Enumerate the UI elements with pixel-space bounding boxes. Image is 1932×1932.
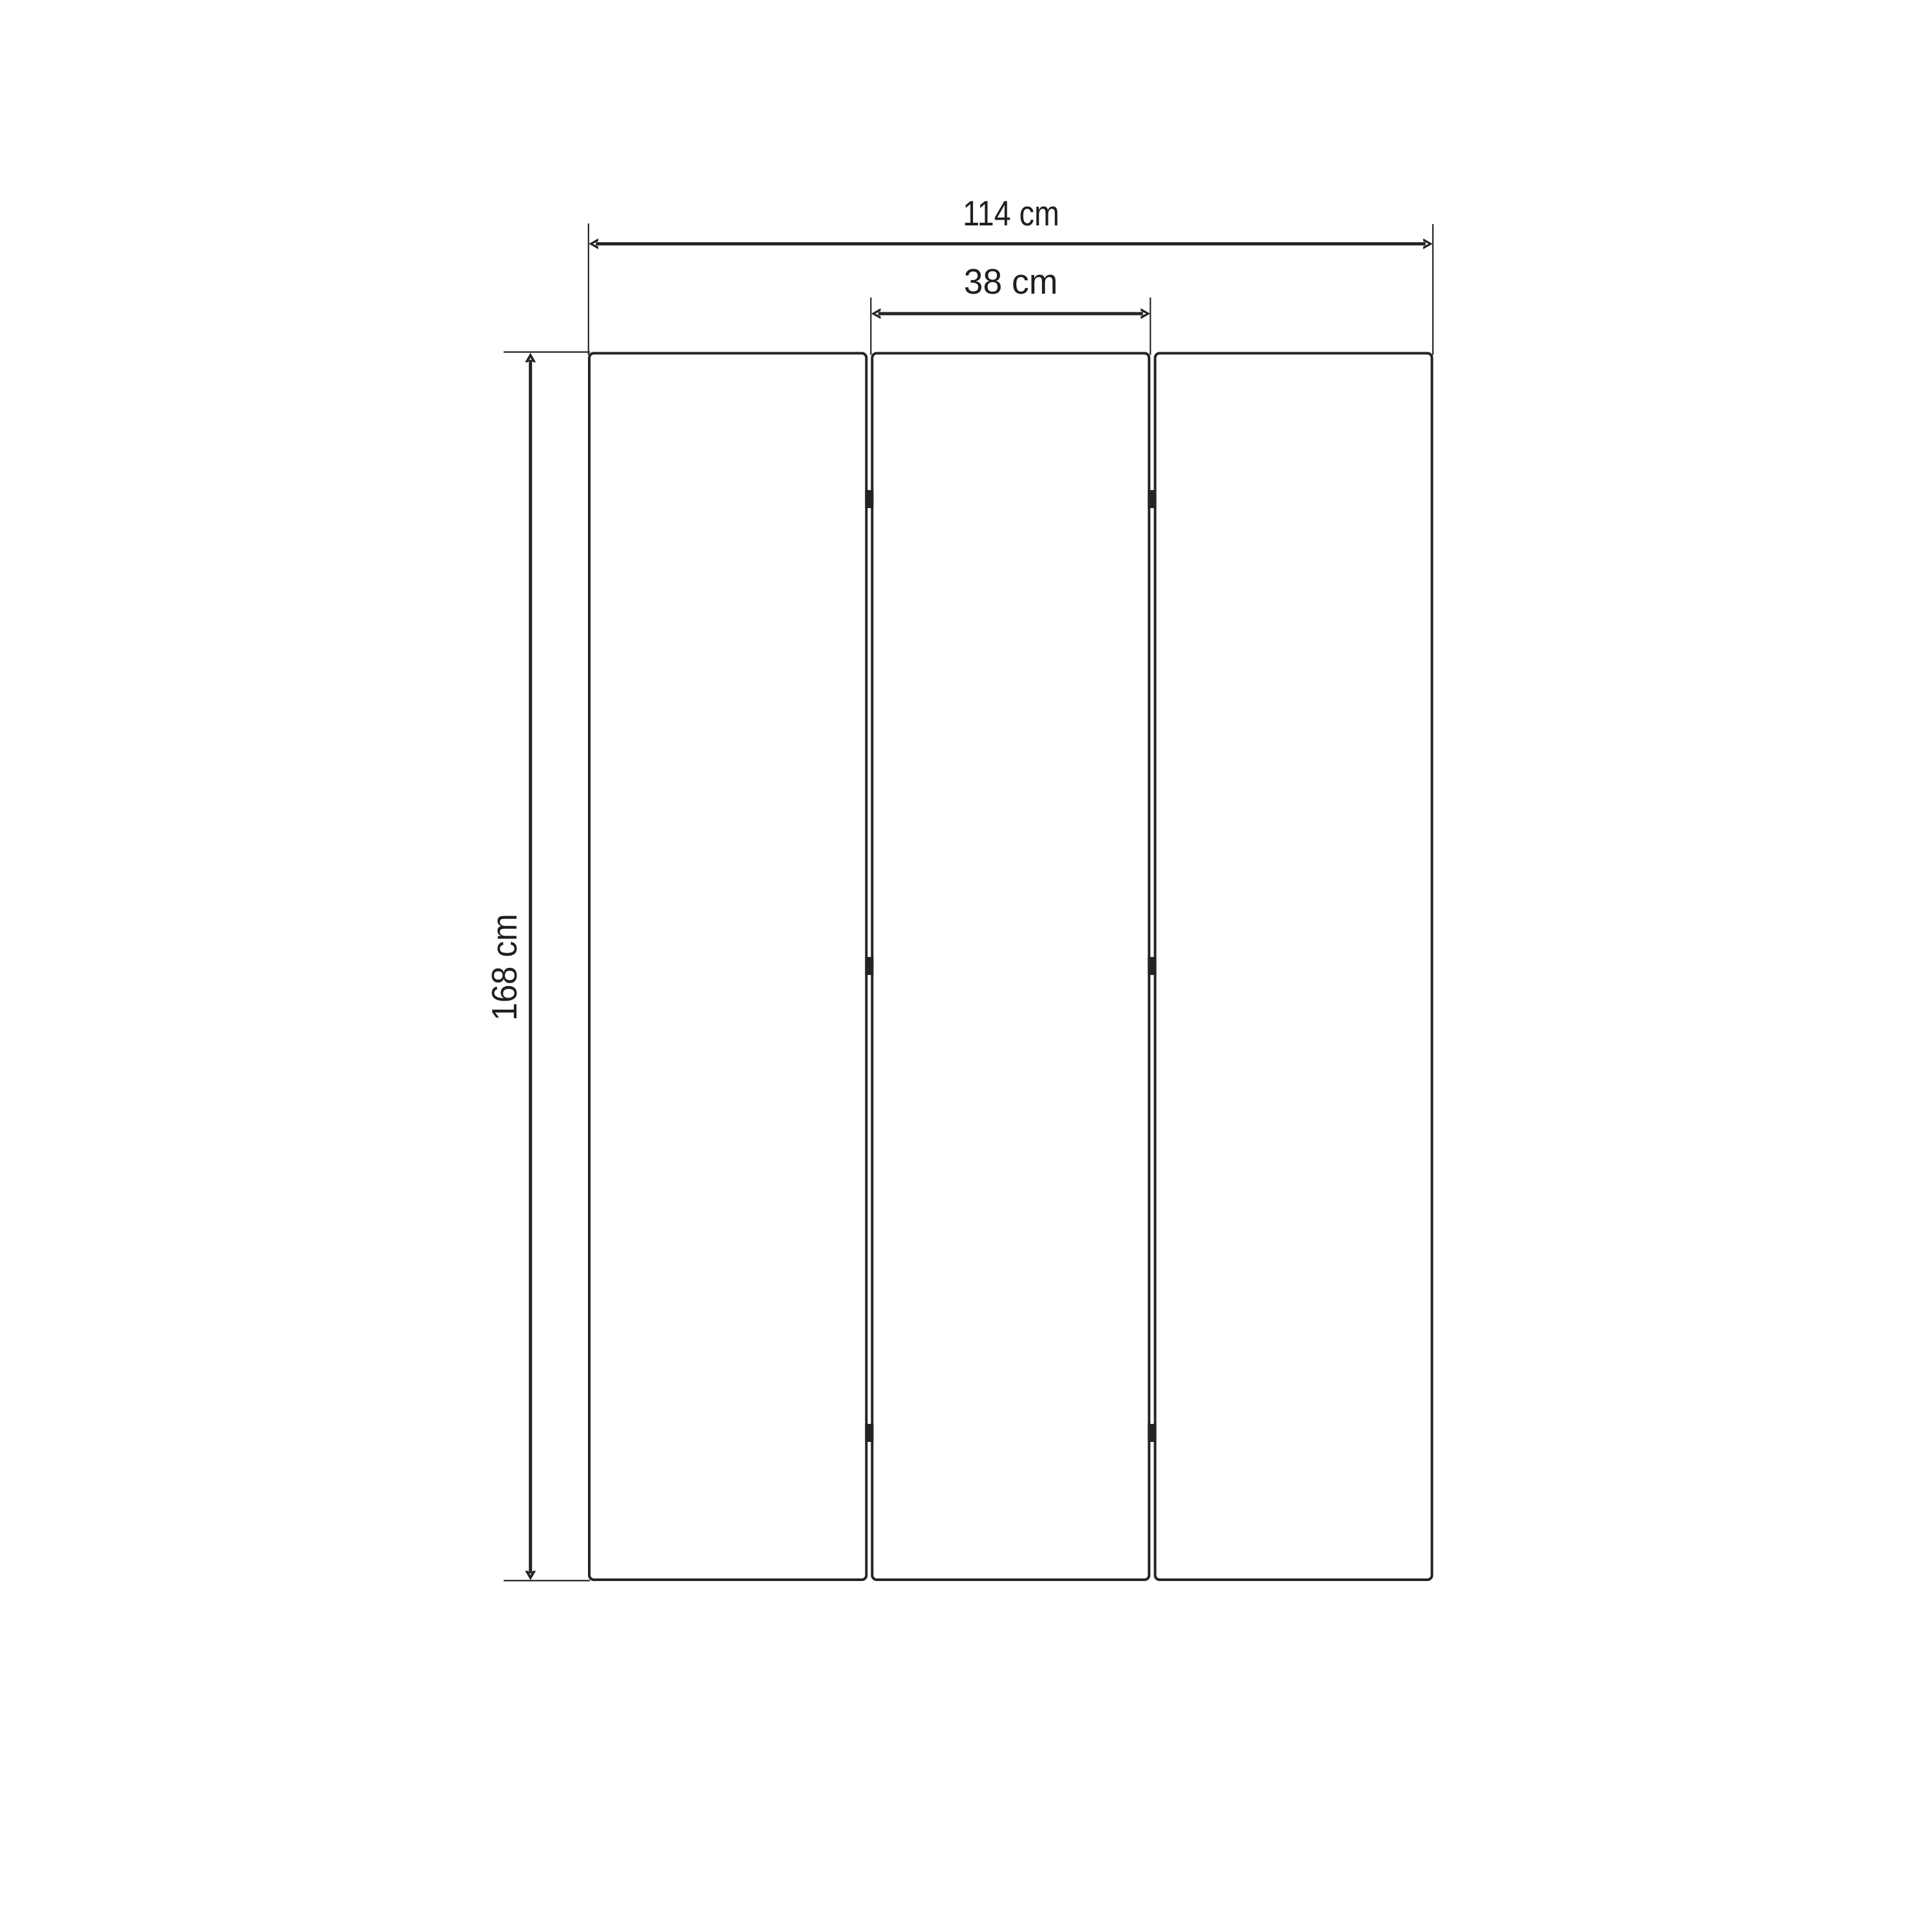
svg-text:114 cm: 114 cm: [963, 193, 1059, 233]
svg-text:38 cm: 38 cm: [964, 261, 1058, 301]
svg-text:168 cm: 168 cm: [484, 914, 524, 1021]
